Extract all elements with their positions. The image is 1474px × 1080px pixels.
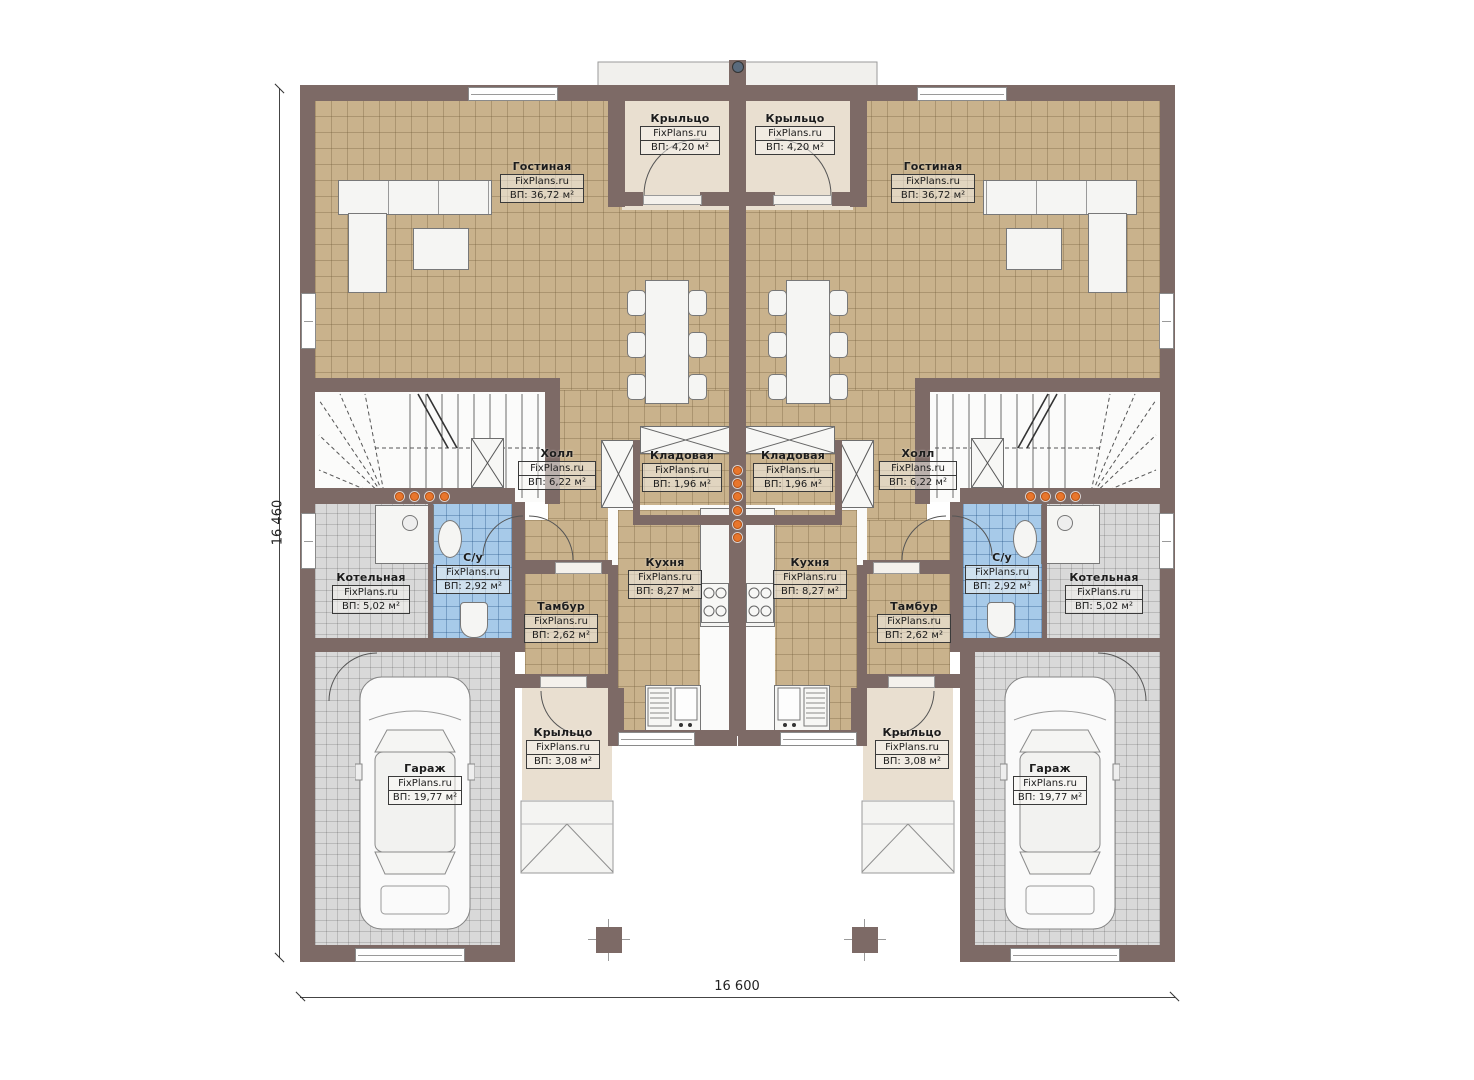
watermark: FixPlans.ru: [501, 175, 583, 188]
room-name: Холл: [879, 447, 957, 460]
room-area: ВП: 2,62 м²: [878, 628, 950, 642]
dimension-label-height: 16 460: [271, 483, 286, 563]
room-label-porch-top-left: Крыльцо FixPlans.ru ВП: 4,20 м²: [640, 112, 720, 155]
canopy-apex-marker: [732, 61, 744, 73]
wall: [832, 192, 850, 206]
garage-door: [1010, 948, 1120, 962]
watermark: FixPlans.ru: [966, 566, 1038, 579]
room-label-porch-rear-right: Крыльцо FixPlans.ru ВП: 3,08 м²: [875, 726, 949, 769]
dimension-label-width: 16 600: [687, 979, 787, 994]
wall: [835, 440, 842, 525]
room-label-porch-rear-left: Крыльцо FixPlans.ru ВП: 3,08 м²: [526, 726, 600, 769]
kitchen-window: [780, 732, 857, 746]
watermark: FixPlans.ru: [892, 175, 974, 188]
sofa-chaise: [1088, 213, 1127, 293]
dining-chair: [768, 290, 787, 316]
coffee-table: [413, 228, 469, 270]
room-area: ВП: 8,27 м²: [774, 584, 846, 598]
watermark: FixPlans.ru: [437, 566, 509, 579]
dining-chair: [627, 290, 646, 316]
structure-marker: [1071, 492, 1080, 501]
coffee-table: [1006, 228, 1062, 270]
watermark: FixPlans.ru: [519, 462, 595, 475]
room-label-kitchen-right: Кухня FixPlans.ru ВП: 8,27 м²: [773, 556, 847, 599]
watermark: FixPlans.ru: [333, 586, 409, 599]
structure-marker: [1041, 492, 1050, 501]
room-name: Гостиная: [500, 160, 584, 173]
structure-marker: [410, 492, 419, 501]
room-label-pantry-left: Кладовая FixPlans.ru ВП: 1,96 м²: [642, 449, 722, 492]
watermark: FixPlans.ru: [1014, 777, 1086, 790]
dining-chair: [627, 332, 646, 358]
room-label-bathroom-right: С/у FixPlans.ru ВП: 2,92 м²: [965, 551, 1039, 594]
window: [301, 293, 316, 349]
room-area: ВП: 36,72 м²: [501, 188, 583, 202]
room-label-hall-right: Холл FixPlans.ru ВП: 6,22 м²: [879, 447, 957, 490]
watermark: FixPlans.ru: [756, 127, 834, 140]
room-area: ВП: 4,20 м²: [756, 140, 834, 154]
dining-chair: [688, 332, 707, 358]
room-label-garage-right: Гараж FixPlans.ru ВП: 19,77 м²: [1013, 762, 1087, 805]
watermark: FixPlans.ru: [527, 741, 599, 754]
kitchen-sink: [774, 685, 830, 731]
room-name: Тамбур: [524, 600, 598, 613]
post: [852, 927, 878, 953]
dining-table: [786, 280, 830, 404]
duct-shaft-hall: [839, 440, 874, 508]
structure-marker: [1026, 492, 1035, 501]
room-name: Холл: [518, 447, 596, 460]
rear-canopy: [520, 800, 614, 874]
window: [1159, 293, 1174, 349]
garage-door-arc: [328, 652, 378, 702]
watermark: FixPlans.ru: [754, 464, 832, 477]
staircase: [927, 390, 1160, 502]
structure-marker: [733, 506, 742, 515]
sofa: [338, 180, 492, 215]
staircase: [315, 390, 548, 502]
room-area: ВП: 36,72 м²: [892, 188, 974, 202]
wall: [625, 192, 643, 206]
room-name: Тамбур: [877, 600, 951, 613]
room-name: С/у: [965, 551, 1039, 564]
kitchen-sink: [645, 685, 701, 731]
room-name: Крыльцо: [875, 726, 949, 739]
dining-chair: [627, 374, 646, 400]
room-name: Гараж: [1013, 762, 1087, 775]
boiler-unit: [402, 515, 418, 531]
window: [917, 87, 1007, 101]
room-area: ВП: 6,22 м²: [880, 475, 956, 489]
wall: [915, 378, 1160, 392]
room-area: ВП: 2,62 м²: [525, 628, 597, 642]
wall: [640, 515, 730, 525]
wall: [1042, 502, 1047, 645]
room-area: ВП: 8,27 м²: [629, 584, 701, 598]
room-area: ВП: 3,08 м²: [876, 754, 948, 768]
watermark: FixPlans.ru: [774, 571, 846, 584]
room-label-porch-top-right: Крыльцо FixPlans.ru ВП: 4,20 м²: [755, 112, 835, 155]
dining-chair: [688, 290, 707, 316]
wall: [315, 378, 560, 392]
watermark: FixPlans.ru: [878, 615, 950, 628]
room-area: ВП: 1,96 м²: [754, 477, 832, 491]
front-door-threshold: [643, 195, 702, 205]
rear-canopy: [861, 800, 955, 874]
garage-door: [355, 948, 465, 962]
room-name: Крыльцо: [755, 112, 835, 125]
dimension-line-bottom: [300, 997, 1175, 998]
room-name: Крыльцо: [526, 726, 600, 739]
room-label-boiler-right: Котельная FixPlans.ru ВП: 5,02 м²: [1065, 571, 1143, 614]
room-name: Котельная: [1065, 571, 1143, 584]
room-label-living-right: Гостиная FixPlans.ru ВП: 36,72 м²: [891, 160, 975, 203]
sofa-chaise: [348, 213, 387, 293]
duct-shaft-stairs: [971, 438, 1004, 488]
wall: [850, 85, 867, 207]
room-label-living-left: Гостиная FixPlans.ru ВП: 36,72 м²: [500, 160, 584, 203]
wall: [315, 638, 525, 652]
wall: [633, 440, 640, 525]
room-label-boiler-left: Котельная FixPlans.ru ВП: 5,02 м²: [332, 571, 410, 614]
room-name: Кладовая: [753, 449, 833, 462]
structure-marker: [425, 492, 434, 501]
window: [301, 513, 316, 569]
watermark: FixPlans.ru: [1066, 586, 1142, 599]
wall: [950, 638, 1160, 652]
wall: [745, 515, 835, 525]
stove: [701, 583, 729, 623]
dining-chair: [768, 332, 787, 358]
wall: [608, 85, 625, 207]
vestibule-door: [873, 562, 920, 574]
post: [596, 927, 622, 953]
room-area: ВП: 19,77 м²: [1014, 790, 1086, 804]
room-name: Котельная: [332, 571, 410, 584]
boiler-unit: [1057, 515, 1073, 531]
room-area: ВП: 3,08 м²: [527, 754, 599, 768]
vestibule-door: [555, 562, 602, 574]
room-label-bathroom-left: С/у FixPlans.ru ВП: 2,92 м²: [436, 551, 510, 594]
room-label-vestibule-left: Тамбур FixPlans.ru ВП: 2,62 м²: [524, 600, 598, 643]
dining-table: [645, 280, 689, 404]
window: [468, 87, 558, 101]
watermark: FixPlans.ru: [880, 462, 956, 475]
sofa: [983, 180, 1137, 215]
structure-marker: [440, 492, 449, 501]
room-label-hall-left: Холл FixPlans.ru ВП: 6,22 м²: [518, 447, 596, 490]
room-name: Гараж: [388, 762, 462, 775]
rear-door: [888, 676, 935, 688]
structure-marker: [733, 533, 742, 542]
hall-door-arc: [528, 515, 574, 561]
wall: [500, 645, 515, 947]
dining-chair: [829, 374, 848, 400]
dining-chair: [768, 374, 787, 400]
wall: [700, 192, 729, 206]
room-label-pantry-right: Кладовая FixPlans.ru ВП: 1,96 м²: [753, 449, 833, 492]
dining-chair: [829, 332, 848, 358]
room-area: ВП: 1,96 м²: [643, 477, 721, 491]
watermark: FixPlans.ru: [525, 615, 597, 628]
duct-shaft-hall: [601, 440, 636, 508]
room-name: Крыльцо: [640, 112, 720, 125]
toilet: [460, 602, 488, 638]
toilet: [987, 602, 1015, 638]
hall-door-arc: [901, 515, 947, 561]
rear-door: [540, 676, 587, 688]
structure-marker: [1056, 492, 1065, 501]
room-name: С/у: [436, 551, 510, 564]
duct-shaft-stairs: [471, 438, 504, 488]
garage-door-arc: [1097, 652, 1147, 702]
structure-marker: [395, 492, 404, 501]
room-area: ВП: 4,20 м²: [641, 140, 719, 154]
structure-marker: [733, 520, 742, 529]
dining-chair: [829, 290, 848, 316]
structure-marker: [733, 479, 742, 488]
boiler-counter: [375, 505, 434, 564]
floor-plan-canvas: Гостиная FixPlans.ru ВП: 36,72 м² Крыльц…: [0, 0, 1474, 1080]
watermark: FixPlans.ru: [629, 571, 701, 584]
room-name: Гостиная: [891, 160, 975, 173]
watermark: FixPlans.ru: [389, 777, 461, 790]
room-area: ВП: 2,92 м²: [437, 579, 509, 593]
kitchen-window: [618, 732, 695, 746]
window: [1159, 513, 1174, 569]
wall: [746, 192, 775, 206]
room-area: ВП: 19,77 м²: [389, 790, 461, 804]
room-area: ВП: 5,02 м²: [1066, 599, 1142, 613]
room-area: ВП: 6,22 м²: [519, 475, 595, 489]
watermark: FixPlans.ru: [876, 741, 948, 754]
room-area: ВП: 5,02 м²: [333, 599, 409, 613]
party-wall: [729, 60, 746, 736]
dining-chair: [688, 374, 707, 400]
stove: [746, 583, 774, 623]
room-name: Кухня: [628, 556, 702, 569]
wall: [960, 645, 975, 947]
watermark: FixPlans.ru: [641, 127, 719, 140]
boiler-counter: [1041, 505, 1100, 564]
structure-marker: [733, 492, 742, 501]
watermark: FixPlans.ru: [643, 464, 721, 477]
structure-marker: [733, 466, 742, 475]
room-label-vestibule-right: Тамбур FixPlans.ru ВП: 2,62 м²: [877, 600, 951, 643]
room-area: ВП: 2,92 м²: [966, 579, 1038, 593]
room-label-garage-left: Гараж FixPlans.ru ВП: 19,77 м²: [388, 762, 462, 805]
front-door-threshold: [773, 195, 832, 205]
room-label-kitchen-left: Кухня FixPlans.ru ВП: 8,27 м²: [628, 556, 702, 599]
room-name: Кладовая: [642, 449, 722, 462]
wall: [428, 502, 433, 645]
room-name: Кухня: [773, 556, 847, 569]
